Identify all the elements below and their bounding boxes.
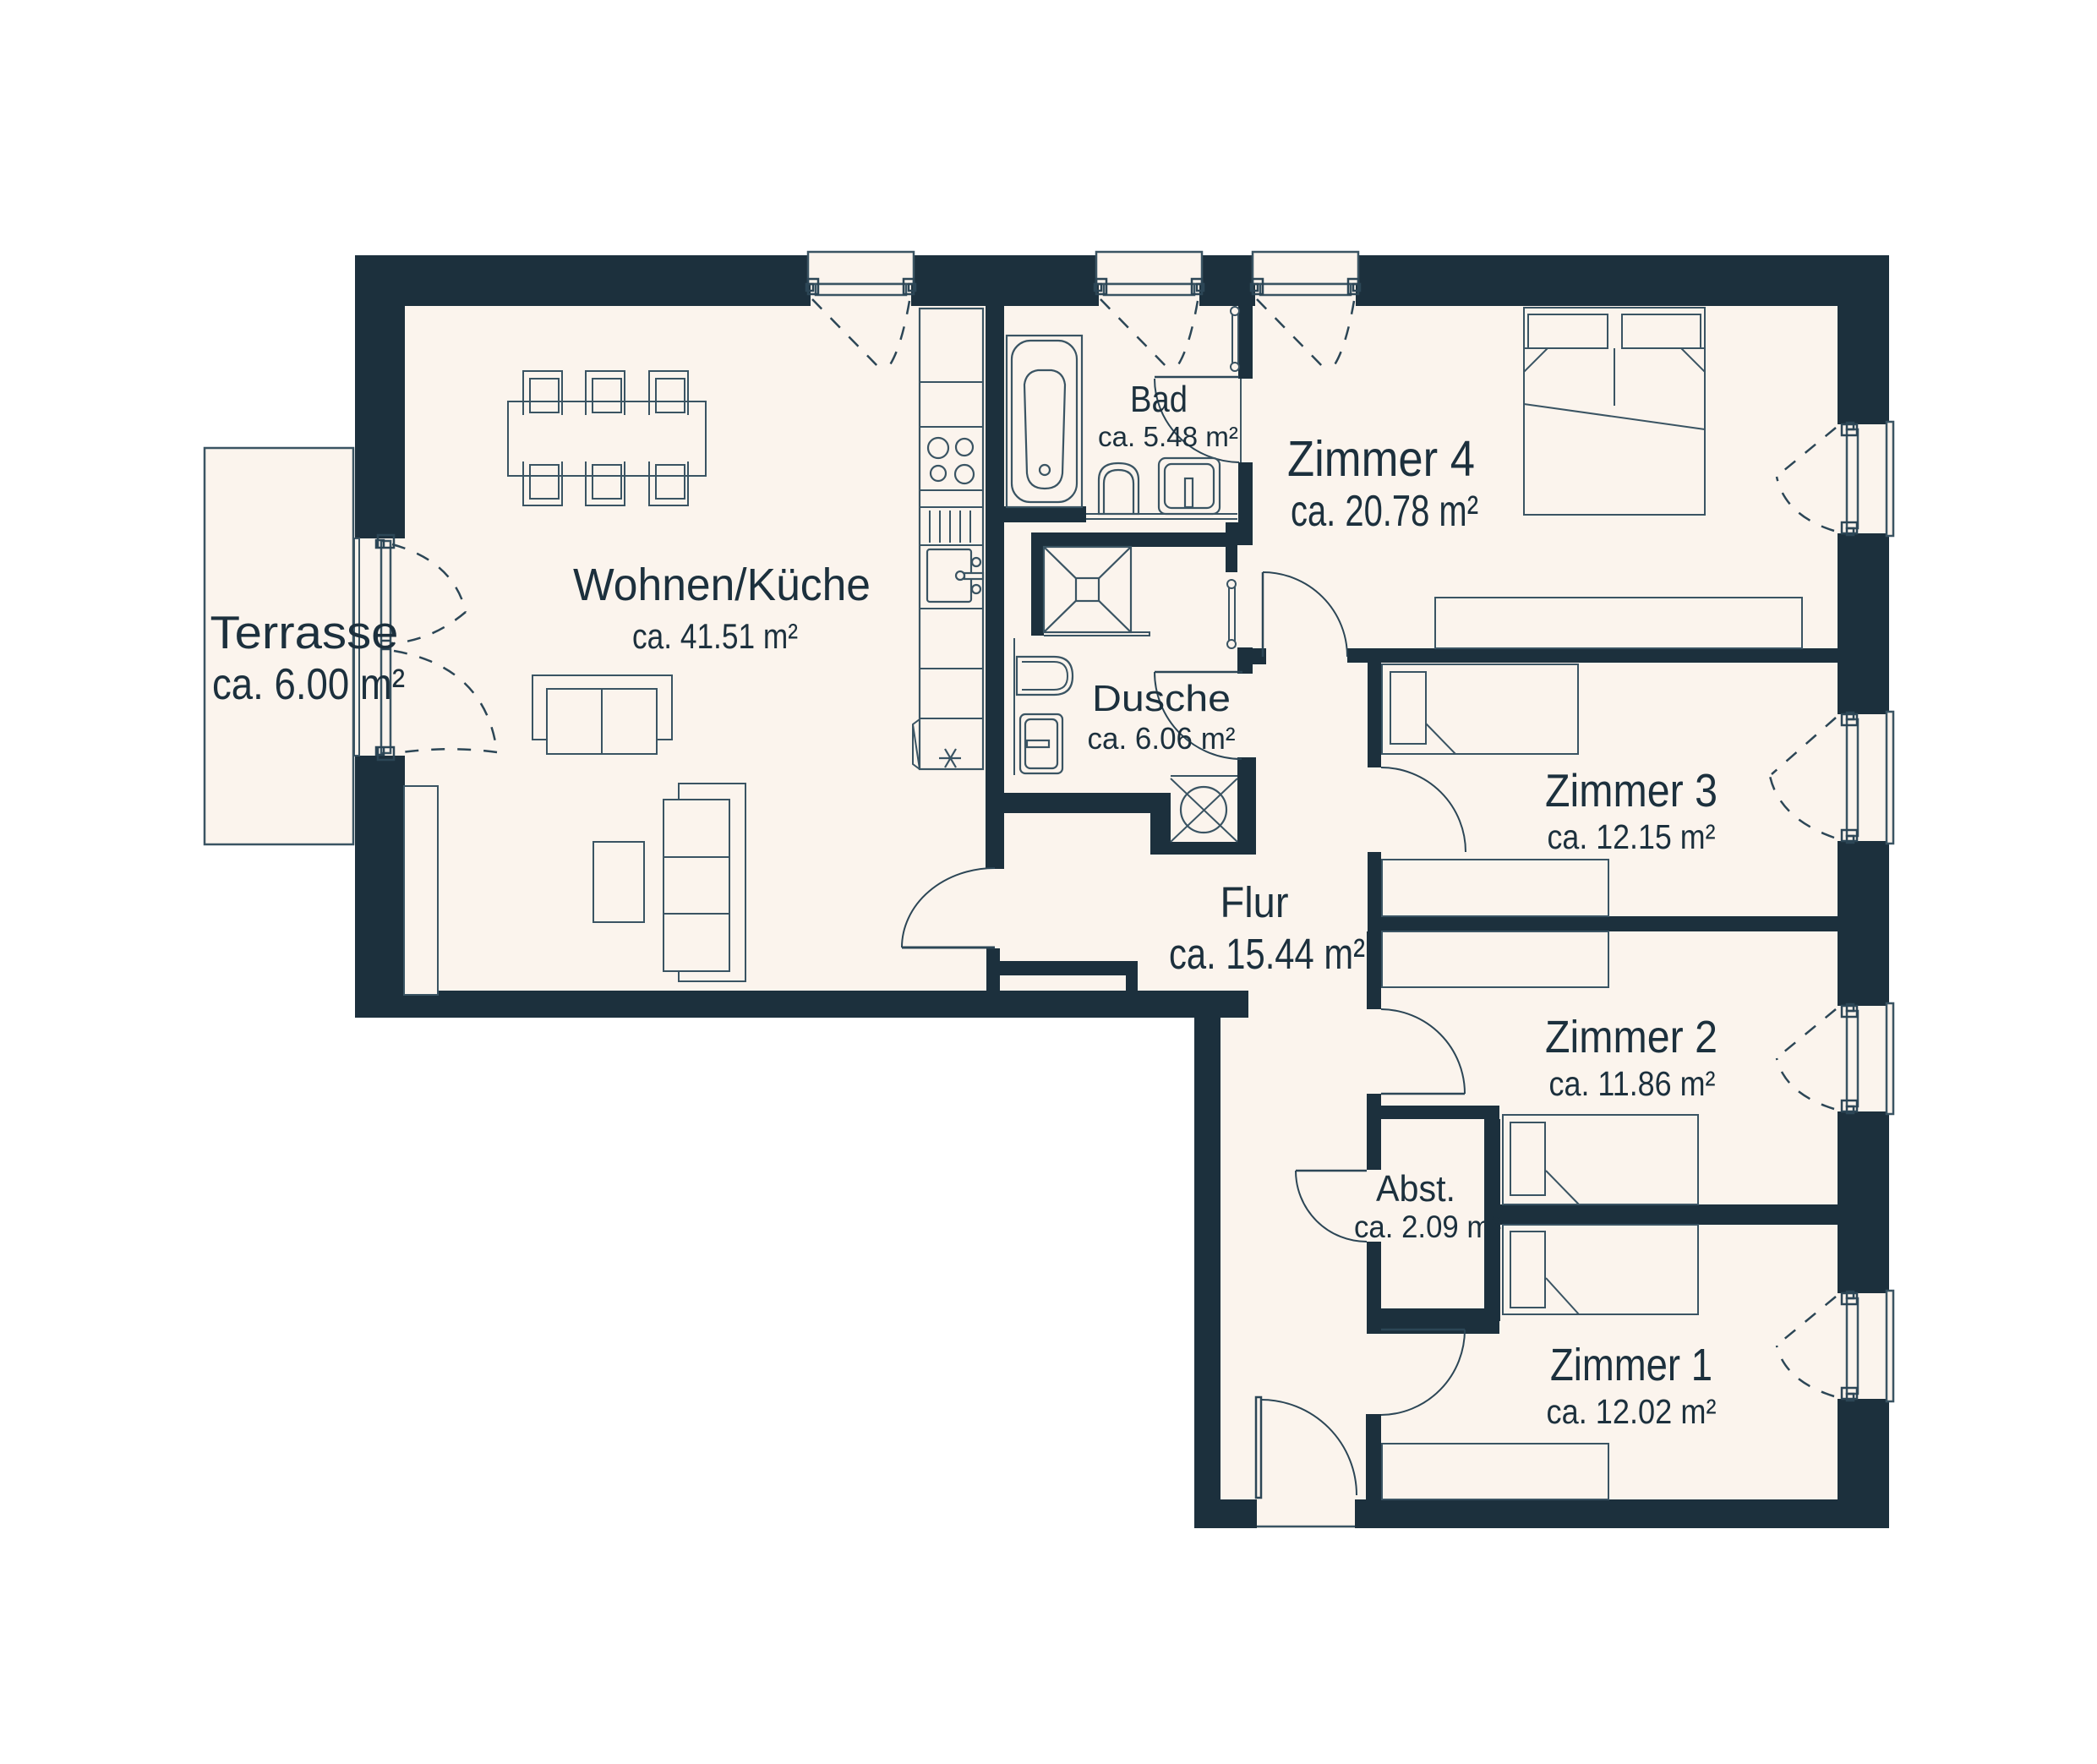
svg-text:Wohnen/Küche: Wohnen/Küche: [573, 560, 871, 610]
svg-text:ca. 6.00 m²: ca. 6.00 m²: [212, 660, 405, 709]
svg-text:ca. 12.15 m²: ca. 12.15 m²: [1548, 817, 1716, 856]
svg-text:Terrasse: Terrasse: [210, 606, 399, 658]
svg-text:ca. 2.09 m²: ca. 2.09 m²: [1354, 1210, 1501, 1244]
svg-text:ca. 11.86 m²: ca. 11.86 m²: [1549, 1064, 1716, 1103]
svg-text:ca. 6.06 m²: ca. 6.06 m²: [1088, 721, 1236, 756]
svg-text:Zimmer 2: Zimmer 2: [1545, 1012, 1717, 1062]
svg-text:ca. 12.02 m²: ca. 12.02 m²: [1547, 1392, 1717, 1431]
svg-text:ca. 5.48 m²: ca. 5.48 m²: [1098, 421, 1238, 452]
svg-text:Zimmer 4: Zimmer 4: [1287, 431, 1475, 487]
svg-text:Bad: Bad: [1130, 379, 1188, 420]
svg-text:ca. 41.51 m²: ca. 41.51 m²: [632, 616, 798, 656]
svg-text:Zimmer 3: Zimmer 3: [1545, 764, 1717, 816]
svg-text:Flur: Flur: [1221, 878, 1289, 926]
svg-text:ca. 20.78 m²: ca. 20.78 m²: [1291, 487, 1478, 536]
svg-text:Dusche: Dusche: [1092, 678, 1231, 719]
svg-text:ca. 15.44 m²: ca. 15.44 m²: [1169, 930, 1365, 978]
svg-text:Zimmer 1: Zimmer 1: [1550, 1340, 1712, 1390]
svg-text:Abst.: Abst.: [1376, 1168, 1455, 1210]
